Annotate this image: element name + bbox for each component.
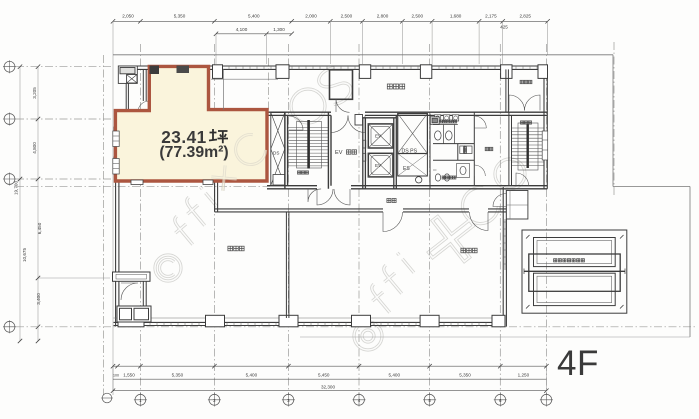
svg-text:1,250: 1,250 — [518, 373, 530, 378]
svg-text:5,350: 5,350 — [172, 373, 184, 378]
svg-text:DS: DS — [273, 151, 279, 156]
svg-text:2,500: 2,500 — [412, 14, 424, 19]
svg-text:1,300: 1,300 — [273, 27, 285, 32]
svg-text:5,350: 5,350 — [174, 14, 186, 19]
svg-text:5,400: 5,400 — [246, 373, 258, 378]
svg-text:5,350: 5,350 — [459, 373, 471, 378]
svg-text:4,100: 4,100 — [236, 27, 248, 32]
svg-text:(77.39m²): (77.39m²) — [159, 144, 228, 161]
svg-text:10,675: 10,675 — [22, 248, 27, 262]
svg-text:3,205: 3,205 — [32, 87, 37, 99]
svg-text:5,400: 5,400 — [389, 373, 401, 378]
svg-text:4F: 4F — [557, 344, 599, 383]
svg-text:4,800: 4,800 — [32, 142, 37, 154]
svg-text:2,500: 2,500 — [341, 14, 353, 19]
svg-text:2,000: 2,000 — [305, 14, 317, 19]
svg-text:5,450: 5,450 — [318, 373, 330, 378]
svg-text:5,400: 5,400 — [248, 14, 260, 19]
svg-text:EV: EV — [375, 163, 382, 168]
svg-text:6,450: 6,450 — [37, 222, 42, 234]
svg-text:32,300: 32,300 — [321, 384, 335, 389]
svg-text:ES: ES — [403, 166, 410, 172]
svg-text:19,700: 19,700 — [14, 181, 19, 195]
svg-text:2,050: 2,050 — [122, 14, 134, 19]
svg-text:100: 100 — [113, 374, 119, 378]
svg-text:1,680: 1,680 — [450, 14, 462, 19]
svg-text:2,800: 2,800 — [377, 14, 389, 19]
svg-text:EV: EV — [335, 150, 343, 156]
svg-text:2,175: 2,175 — [485, 14, 497, 19]
svg-text:2,825: 2,825 — [519, 14, 531, 19]
svg-text:EV: EV — [375, 134, 382, 139]
svg-text:1,550: 1,550 — [123, 373, 135, 378]
svg-text:425: 425 — [500, 25, 508, 30]
svg-text:DS PS: DS PS — [402, 149, 418, 155]
svg-text:3,400: 3,400 — [36, 293, 41, 305]
